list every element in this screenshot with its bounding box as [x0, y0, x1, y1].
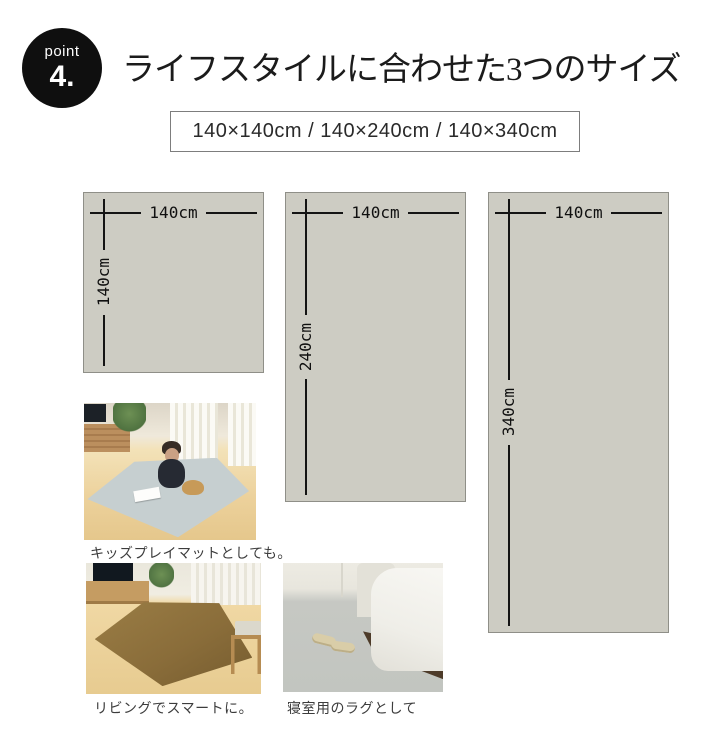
caption-living-room: リビングでスマートに。: [94, 698, 253, 718]
wall-corner-shape: [341, 563, 343, 597]
page-title: ライフスタイルに合わせた3つのサイズ: [122, 42, 681, 90]
brown-rug-shape: [95, 602, 253, 686]
caption-kids-playmat: キッズプレイマットとしても。: [90, 543, 292, 563]
photo-living-room: [86, 563, 261, 694]
bed-duvet-shape: [371, 568, 443, 671]
tv-shape: [84, 404, 106, 422]
size-diagram-140x340: 140cm 340cm: [488, 192, 669, 633]
height-dimension: 240cm: [297, 199, 315, 495]
point-badge: point 4.: [22, 28, 102, 108]
dimension-line: [508, 199, 510, 380]
size-diagram-140x140: 140cm 140cm: [83, 192, 264, 373]
dimension-line: [305, 379, 307, 495]
width-label: 140cm: [351, 205, 399, 221]
point-number: 4.: [49, 62, 74, 92]
caption-bedroom: 寝室用のラグとして: [287, 698, 417, 718]
dimension-line: [305, 199, 307, 315]
tv-cabinet-shape: [86, 581, 149, 603]
dimension-line: [508, 445, 510, 626]
width-label: 140cm: [149, 205, 197, 221]
height-dimension: 140cm: [95, 199, 113, 366]
size-list-box: 140×140cm / 140×240cm / 140×340cm: [170, 111, 580, 152]
width-dimension: 140cm: [292, 204, 459, 222]
dimension-line: [206, 212, 257, 214]
size-list-text: 140×140cm / 140×240cm / 140×340cm: [192, 120, 557, 143]
height-label: 140cm: [96, 258, 112, 306]
width-label: 140cm: [554, 205, 602, 221]
height-label: 340cm: [501, 388, 517, 436]
plant-shape: [113, 403, 146, 433]
dimension-line: [611, 212, 662, 214]
slipper-shape: [330, 640, 355, 654]
height-dimension: 340cm: [500, 199, 518, 626]
tv-shape: [93, 563, 133, 583]
window-curtain-shape: [191, 563, 261, 605]
height-label: 240cm: [298, 323, 314, 371]
point-label: point: [44, 44, 79, 59]
child-body-shape: [158, 459, 186, 488]
width-dimension: 140cm: [90, 204, 257, 222]
width-dimension: 140cm: [495, 204, 662, 222]
plant-shape: [149, 563, 174, 589]
dimension-line: [103, 199, 105, 250]
product-point4-section: point 4. ライフスタイルに合わせた3つのサイズ 140×140cm / …: [0, 0, 720, 730]
window-curtain-shape: [228, 403, 256, 466]
dog-toy-shape: [182, 480, 204, 495]
size-diagram-140x240: 140cm 240cm: [285, 192, 466, 502]
chair-frame-shape: [231, 635, 261, 674]
photo-bedroom: [283, 563, 443, 692]
dimension-line: [103, 315, 105, 366]
dimension-line: [408, 212, 459, 214]
photo-kids-playmat: [84, 403, 256, 540]
